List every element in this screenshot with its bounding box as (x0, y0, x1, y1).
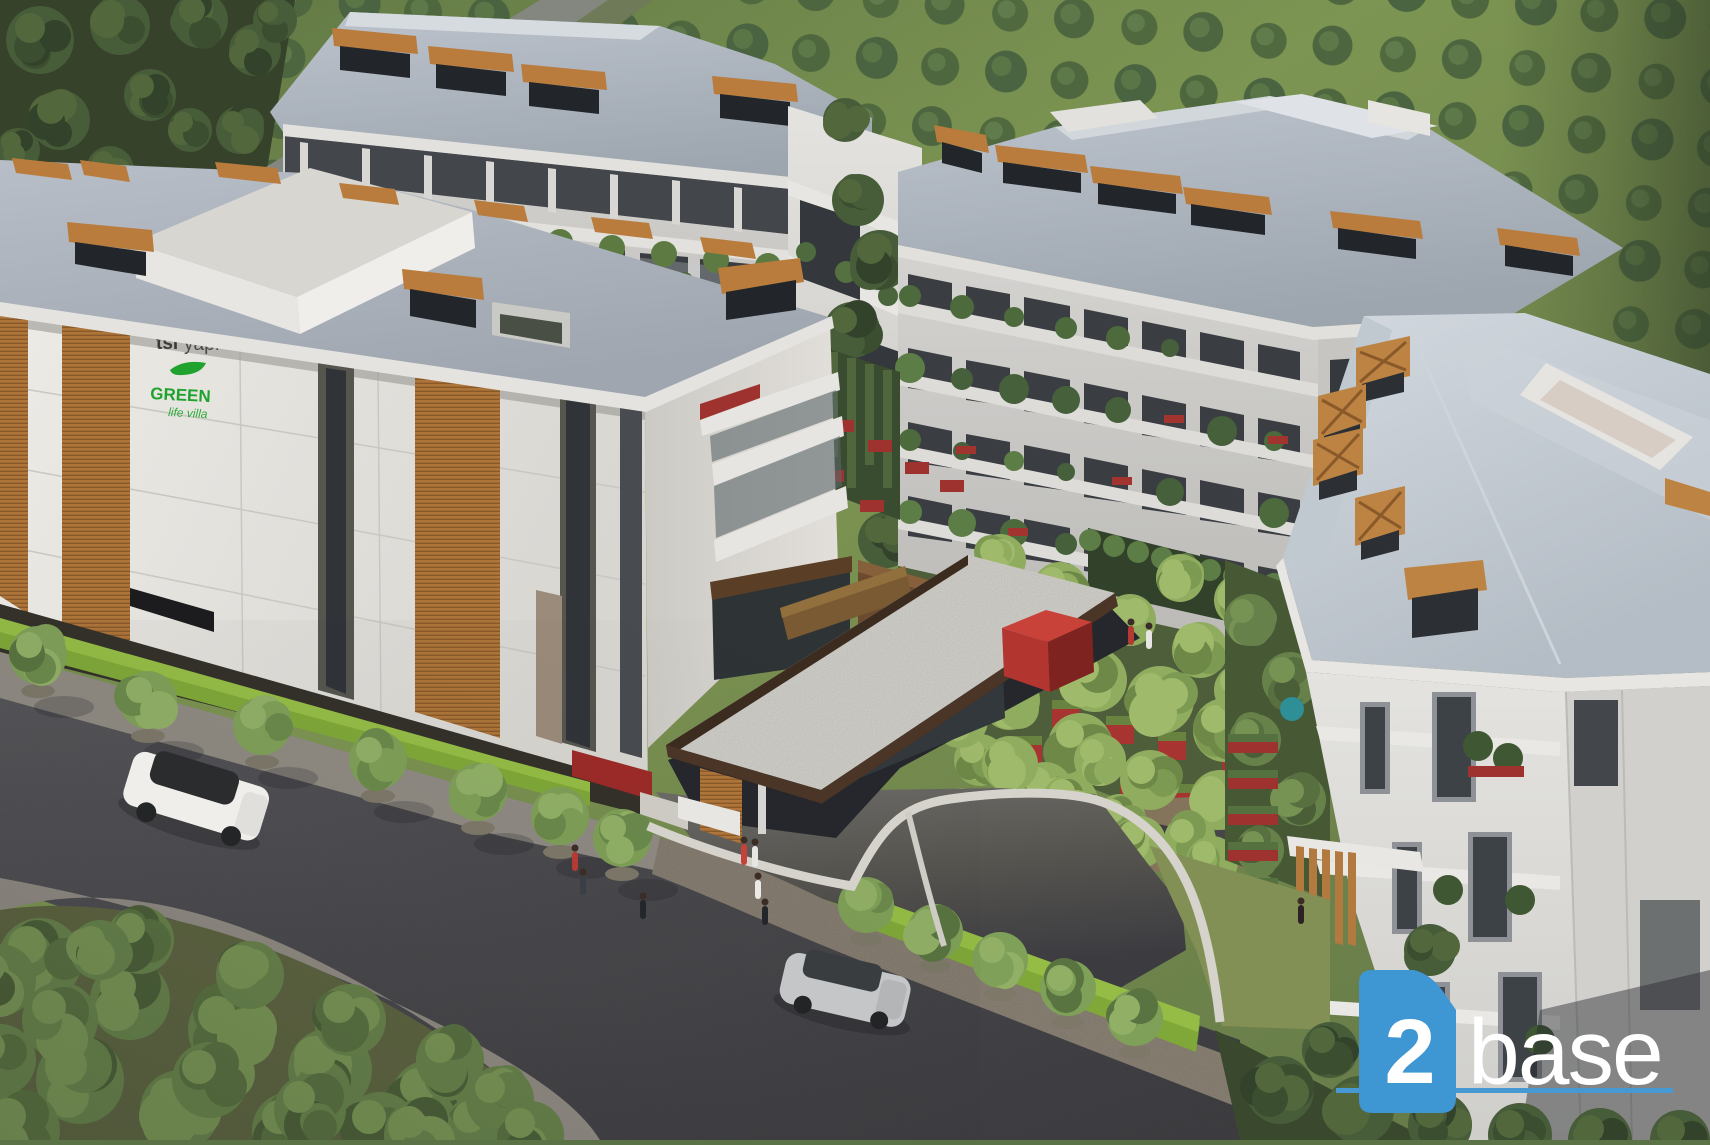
svg-text:2: 2 (1384, 1001, 1435, 1103)
svg-text:GREEN: GREEN (150, 384, 211, 406)
svg-text:life villa: life villa (168, 405, 208, 421)
svg-text:base: base (1468, 1000, 1662, 1104)
